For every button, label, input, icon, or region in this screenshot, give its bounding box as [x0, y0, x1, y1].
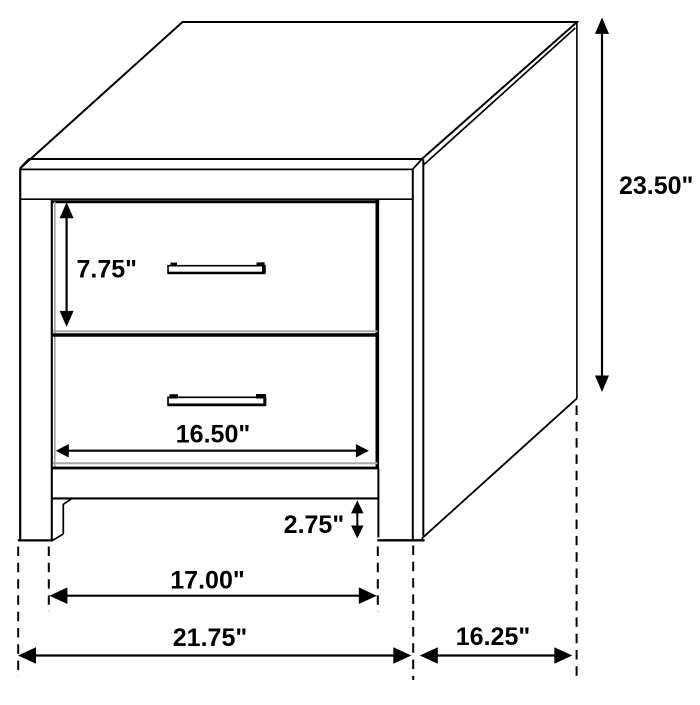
svg-text:16.25": 16.25" — [456, 623, 530, 651]
svg-text:21.75": 21.75" — [173, 624, 247, 652]
svg-text:2.75": 2.75" — [284, 511, 345, 539]
svg-text:17.00": 17.00" — [170, 567, 244, 595]
svg-text:7.75": 7.75" — [77, 256, 138, 284]
svg-text:16.50": 16.50" — [176, 421, 250, 449]
svg-text:23.50": 23.50" — [619, 172, 693, 200]
